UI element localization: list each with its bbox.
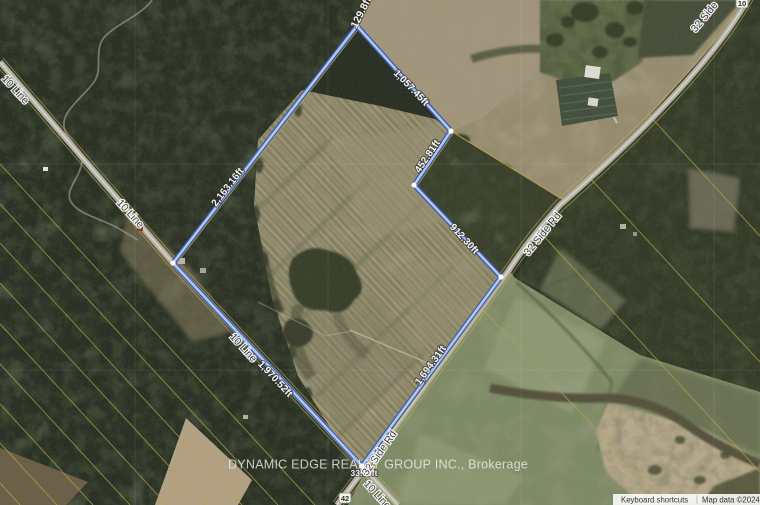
- svg-text:Keyboard shortcuts: Keyboard shortcuts: [621, 496, 688, 505]
- svg-text:Map data ©2024 Im: Map data ©2024 Im: [702, 496, 760, 505]
- svg-text:DYNAMIC EDGE REALTY GROUP INC.: DYNAMIC EDGE REALTY GROUP INC., Brokerag…: [228, 458, 528, 472]
